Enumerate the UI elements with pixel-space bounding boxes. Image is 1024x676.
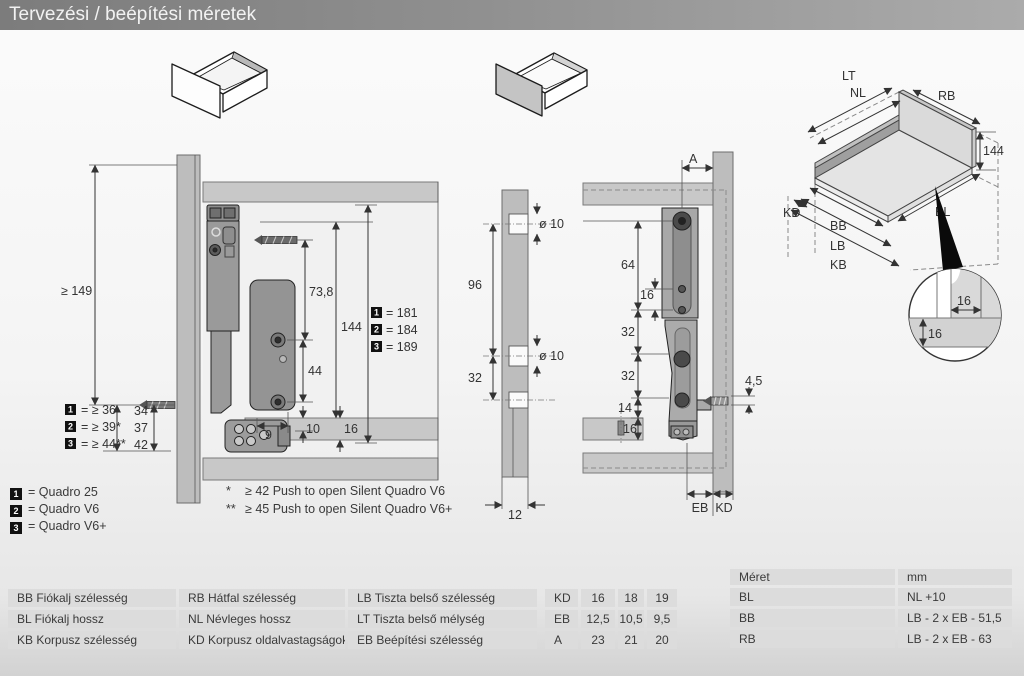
table-cell: A xyxy=(545,631,578,649)
footnotes: *≥ 42 Push to open Silent Quadro V6 **≥ … xyxy=(226,482,452,518)
dim-label-32-upper: 32 xyxy=(621,325,635,339)
drawer-pictogram-icon xyxy=(168,40,293,120)
table-cell: 12,5 xyxy=(581,610,615,628)
height-legend: 1 = 181 2 = 184 3 = 189 xyxy=(371,306,418,354)
detail-dim-h: 16 xyxy=(957,294,971,308)
callout-wedge xyxy=(935,186,963,271)
table-cell: LB Tiszta belső szélesség xyxy=(348,589,537,607)
dim-label-eb: EB xyxy=(692,501,709,515)
table-cell: 23 xyxy=(581,631,615,649)
iso-label-kd: KD xyxy=(783,206,800,220)
legend-label: = Quadro V6+ xyxy=(28,519,107,533)
legend-key-icon: 2 xyxy=(374,325,379,335)
table-cell: 16 xyxy=(581,589,615,607)
dim-label-min-height: ≥ 149 xyxy=(61,284,92,298)
iso-dim-144: 144 xyxy=(983,144,1004,158)
legend-key-icon: 3 xyxy=(10,522,22,534)
legend-label: = ≥ 39* xyxy=(81,420,121,434)
table-cell: BB Fiókalj szélesség xyxy=(8,589,176,607)
table-cell: LB - 2 x EB - 51,5 xyxy=(898,609,1012,627)
table-cell: LT Tiszta belső mélység xyxy=(348,610,537,628)
dim-label-hole-top: ø 10 xyxy=(539,217,564,231)
footnote-mark: * xyxy=(226,482,245,500)
legend-label: = Quadro V6 xyxy=(28,502,99,516)
table-cell: RB xyxy=(730,630,895,648)
table-header-cell: Méret xyxy=(730,569,895,585)
legend-label: = 184 xyxy=(386,323,418,337)
dim-label-32-lower: 32 xyxy=(621,369,635,383)
table-cell: KB Korpusz szélesség xyxy=(8,631,176,649)
formula-table: Méret mm BL NL +10 BB LB - 2 x EB - 51,5… xyxy=(730,569,1012,648)
legend-key-icon: 2 xyxy=(10,505,22,517)
dim-label-a: A xyxy=(689,152,698,166)
iso-label-lb: LB xyxy=(830,239,845,253)
table-cell: KD xyxy=(545,589,578,607)
dim-label-64: 64 xyxy=(621,258,635,272)
table-cell: EB xyxy=(545,610,578,628)
page-title: Tervezési / beépítési méretek xyxy=(0,0,256,30)
legend-key-icon: 3 xyxy=(374,342,379,352)
footnote: *≥ 42 Push to open Silent Quadro V6 xyxy=(226,482,452,500)
legend-label: = 189 xyxy=(386,340,418,354)
dim-label-32: 32 xyxy=(468,371,482,385)
drawer-open-icon xyxy=(172,52,267,118)
dim-label-hole-bottom: ø 10 xyxy=(539,349,564,363)
dim-label-16: 16 xyxy=(344,422,358,436)
legend-label: = Quadro 25 xyxy=(28,485,98,499)
dim-label-16-bottom: 16 xyxy=(623,422,637,436)
table-cell: 19 xyxy=(647,589,677,607)
table-cell: NL +10 xyxy=(898,588,1012,606)
product-legend: 1= Quadro 25 2= Quadro V6 3= Quadro V6+ xyxy=(10,484,107,535)
iso-label-rb: RB xyxy=(938,89,955,103)
rear-section-view: A 64 16 32 32 14 16 4,5 EB KD xyxy=(583,138,778,530)
footnote: **≥ 45 Push to open Silent Quadro V6+ xyxy=(226,500,452,518)
legend-key-icon: 1 xyxy=(10,488,22,500)
dim-label-144: 144 xyxy=(341,320,362,334)
dim-label-12: 12 xyxy=(508,508,522,522)
back-panel-structure xyxy=(502,190,528,477)
dim-label-42: 42 xyxy=(134,438,148,452)
dim-label-73-8: 73,8 xyxy=(309,285,333,299)
iso-label-nl: NL xyxy=(850,86,866,100)
isometric-overview: LT NL RB 144 KD BB LB KB BL 16 16 xyxy=(780,38,1024,370)
table-cell: RB Hátfal szélesség xyxy=(179,589,345,607)
iso-label-bb: BB xyxy=(830,219,847,233)
table-cell: BL xyxy=(730,588,895,606)
dim-label-44: 44 xyxy=(308,364,322,378)
footnote-mark: ** xyxy=(226,500,245,518)
iso-label-kb: KB xyxy=(830,258,847,272)
legend-key-icon: 1 xyxy=(68,405,73,415)
screw-icon xyxy=(254,235,297,245)
table-cell: 18 xyxy=(618,589,644,607)
legend-item: 1= Quadro 25 xyxy=(10,484,107,501)
dim-label-96: 96 xyxy=(468,278,482,292)
table-cell: BL Fiókalj hossz xyxy=(8,610,176,628)
legend-label: = ≥ 36 xyxy=(81,403,116,417)
dim-label-4-5: 4,5 xyxy=(745,374,762,388)
table-cell: KD Korpusz oldalvastagságok xyxy=(179,631,345,649)
table-cell: 9,5 xyxy=(647,610,677,628)
dim-label-37: 37 xyxy=(134,421,148,435)
table-cell: 10,5 xyxy=(618,610,644,628)
dim-label-kd: KD xyxy=(715,501,732,515)
dim-label-9: 9 xyxy=(265,428,272,442)
rear-bracket xyxy=(662,208,711,440)
legend-item: 3= Quadro V6+ xyxy=(10,518,107,535)
legend-label: = 181 xyxy=(386,306,418,320)
table-cell: EB Beépítési szélesség xyxy=(348,631,537,649)
footnote-text: ≥ 42 Push to open Silent Quadro V6 xyxy=(245,484,445,498)
footnote-text: ≥ 45 Push to open Silent Quadro V6+ xyxy=(245,502,452,516)
catalog-page: { "title_bar": { "title": "Tervezési / b… xyxy=(0,0,1024,676)
table-header-cell: mm xyxy=(898,569,1012,585)
drawer-pictogram-filled-icon xyxy=(492,42,602,120)
dim-label-10: 10 xyxy=(306,422,320,436)
dim-label-14: 14 xyxy=(618,401,632,415)
back-panel-drilling-view: ø 10 ø 10 96 32 12 xyxy=(455,175,570,530)
legend-label: = ≥ 44** xyxy=(81,437,126,451)
dim-label-16-slot: 16 xyxy=(640,288,654,302)
table-cell: 20 xyxy=(647,631,677,649)
table-cell: NL Névleges hossz xyxy=(179,610,345,628)
iso-label-lt: LT xyxy=(842,69,856,83)
values-table: KD 16 18 19 EB 12,5 10,5 9,5 A 23 21 20 xyxy=(545,589,677,649)
legend-key-icon: 2 xyxy=(68,422,73,432)
legend-key-icon: 1 xyxy=(374,308,379,318)
table-cell: 21 xyxy=(618,631,644,649)
legend-item: 2= Quadro V6 xyxy=(10,501,107,518)
dim-label-34: 34 xyxy=(134,404,148,418)
drawer-closed-icon xyxy=(496,53,587,116)
abbreviation-table: BB Fiókalj szélesség RB Hátfal szélesség… xyxy=(8,589,537,649)
legend-key-icon: 3 xyxy=(68,439,73,449)
detail-dim-v: 16 xyxy=(928,327,942,341)
side-view-drawing: ≥ 149 34 37 42 73,8 144 44 9 10 16 1 = ≥… xyxy=(55,135,445,530)
title-bar: Tervezési / beépítési méretek xyxy=(0,0,1024,30)
table-cell: LB - 2 x EB - 63 xyxy=(898,630,1012,648)
table-cell: BB xyxy=(730,609,895,627)
rear-structure xyxy=(583,152,733,492)
